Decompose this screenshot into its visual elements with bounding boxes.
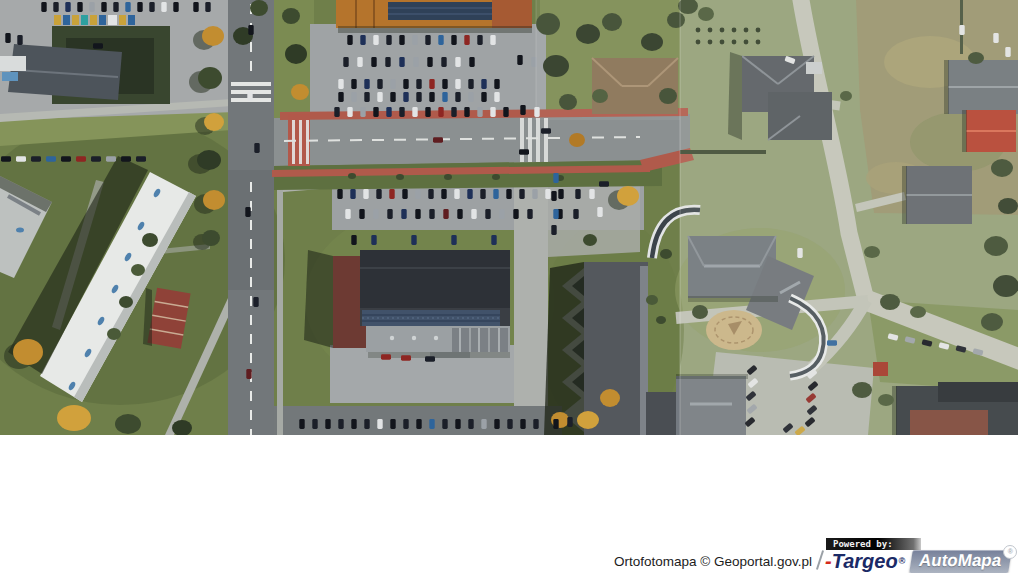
attribution-text: Ortofotomapa © Geoportal.gov.pl	[614, 554, 812, 569]
targeo-logo: -Targeo®	[825, 551, 905, 571]
automapa-registered-mark: ®	[1003, 545, 1017, 559]
targeo-wordmark: Targeo	[832, 551, 898, 571]
page: Ortofotomapa © Geoportal.gov.pl Powered …	[0, 0, 1018, 573]
targeo-dash: -	[825, 551, 832, 571]
containers-row	[54, 15, 135, 25]
logo-divider	[816, 550, 824, 570]
automapa-wordmark: AutoMapa	[909, 550, 1012, 573]
central-supermarket-building	[333, 250, 510, 358]
automapa-logo: AutoMapa ®	[911, 550, 1010, 573]
targeo-registered-mark: ®	[899, 557, 906, 566]
provider-logo[interactable]: Powered by: -Targeo® AutoMapa ®	[825, 538, 1015, 573]
map-viewport[interactable]	[0, 0, 1018, 435]
logo-brands-row: -Targeo® AutoMapa ®	[825, 549, 1010, 573]
retail-building-top	[336, 0, 532, 28]
aerial-imagery	[0, 0, 1018, 435]
attribution-bar: Ortofotomapa © Geoportal.gov.pl Powered …	[614, 537, 1015, 573]
